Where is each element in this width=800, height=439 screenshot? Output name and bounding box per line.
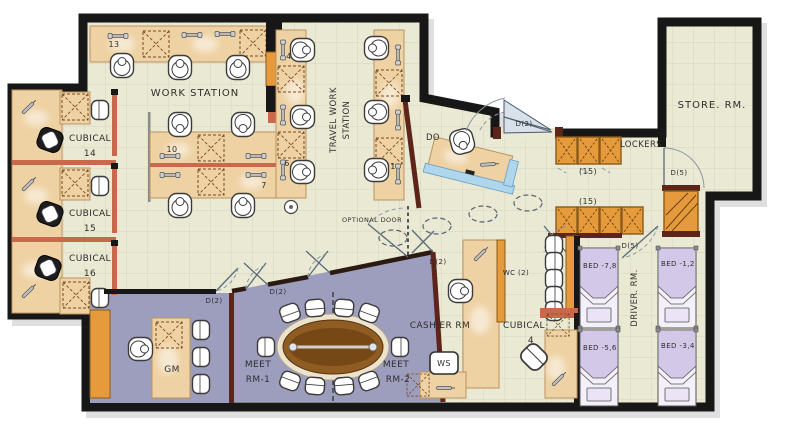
room-label-meet1-num: RM-1: [246, 375, 271, 385]
door-label-d2-gm: D(2): [206, 297, 223, 305]
meeting-chair-icon: [305, 377, 325, 396]
label-lockers: LOCKERS: [620, 140, 662, 150]
workstation-top-counter: [90, 26, 268, 80]
person-chair-icon: [232, 113, 255, 137]
workstation-number-13: 13: [109, 40, 120, 49]
room-label-gm: GM: [164, 365, 180, 375]
room-label-travel-work-1: TRAVEL WORK: [329, 87, 339, 154]
bed-label-56: BED -5,6: [583, 344, 617, 352]
bed-label-34: BED -3,4: [661, 342, 695, 350]
person-chair-icon: [232, 194, 255, 218]
room-label-meet2-num: RM-2: [386, 375, 411, 385]
locker-icon: [600, 137, 621, 164]
door-label-d2-meet: D(2): [270, 288, 287, 296]
locker-icon: [556, 137, 577, 164]
door-label-d5-store: D(5): [671, 169, 688, 177]
cubical-partition: [112, 168, 117, 233]
bed-56: [578, 328, 620, 406]
cubical14-shelf: [60, 92, 90, 124]
room-label-driver: DRIVER. RM.: [630, 269, 640, 327]
workstation-number-7: 7: [261, 181, 267, 190]
meeting-chair-icon: [305, 299, 325, 318]
cubical-partition: [112, 245, 117, 295]
gm-cabinet: [90, 310, 110, 398]
room-label-meet1-word: MEET: [245, 360, 271, 370]
person-chair-icon: [365, 159, 389, 182]
room-label-cashier: CASHIER RM: [410, 321, 470, 331]
workstation-number-10: 10: [167, 145, 178, 154]
meeting-chair-icon: [334, 299, 354, 318]
meeting-chair-icon: [392, 338, 409, 357]
cubical-partition: [12, 237, 116, 242]
room-label-cubical16-num: 16: [84, 269, 96, 279]
room-label-cubical15-num: 15: [84, 224, 96, 234]
cubical-partition: [12, 160, 116, 165]
door-label-d5-driver: D(5): [622, 242, 639, 250]
label-optional-door: OPTIONAL DOOR: [342, 216, 402, 224]
person-chair-icon: [129, 338, 153, 361]
guest-chair-icon: [193, 375, 210, 394]
person-chair-icon: [365, 37, 389, 60]
locker-icon: [556, 207, 577, 234]
person-chair-icon: [169, 113, 192, 137]
guest-chair-icon: [92, 101, 109, 120]
floor-plan-canvas: WORK STATION TRAVEL WORK STATION STORE. …: [0, 0, 800, 439]
room-label-cubical14-word: CUBICAL: [69, 134, 111, 144]
room-label-wc: WC (2): [503, 269, 529, 277]
bench-chair-icon: [546, 236, 563, 255]
wardrobe-cabinet: [662, 185, 700, 237]
column-icon: [289, 205, 293, 209]
locker-icon: [622, 207, 643, 234]
room-label-cubical16-word: CUBICAL: [69, 254, 111, 264]
room-label-cubical15-word: CUBICAL: [69, 209, 111, 219]
workstation-number-4: 4: [286, 52, 292, 61]
room-label-cubical14-num: 14: [84, 149, 96, 159]
bench-chair-icon: [546, 253, 563, 272]
person-chair-icon: [169, 194, 192, 218]
floor-plan: WORK STATION TRAVEL WORK STATION STORE. …: [0, 0, 800, 439]
locker-icon: [600, 207, 621, 234]
room-label-work-station: WORK STATION: [151, 88, 240, 99]
person-chair-icon: [169, 56, 192, 80]
meeting-chair-icon: [258, 338, 275, 357]
person-chair-icon: [365, 101, 389, 124]
bed-78: [578, 246, 620, 330]
room-label-travel-work-2: STATION: [342, 101, 352, 140]
guest-chair-icon: [193, 321, 210, 340]
locker-icon: [578, 207, 599, 234]
bed-label-12: BED -1,2: [661, 260, 695, 268]
door-label-d2-entrance: D(2): [516, 120, 533, 128]
label-locker-capacity-1: (15): [579, 167, 597, 176]
room-label-do: DO: [426, 133, 440, 143]
bed-label-78: BED -7,8: [583, 262, 617, 270]
cubical-partition: [112, 94, 117, 156]
room-label-store: STORE. RM.: [678, 100, 747, 111]
meeting-chair-icon: [334, 377, 354, 396]
person-chair-icon: [291, 39, 315, 62]
label-locker-capacity-2: (15): [579, 197, 597, 206]
locker-icon: [578, 137, 599, 164]
door-label-d2-cashier: D(2): [430, 258, 447, 266]
room-label-cubical4-num: 4: [528, 336, 534, 346]
bench-chair-icon: [546, 270, 563, 289]
person-chair-icon: [291, 106, 315, 129]
guest-chair-icon: [92, 177, 109, 196]
person-chair-icon: [111, 54, 134, 78]
label-ws: WS: [437, 359, 451, 368]
workstation-number-1: 1: [390, 162, 396, 171]
cubical15-shelf: [60, 168, 90, 200]
guest-chair-icon: [193, 348, 210, 367]
workstation-number-6: 6: [284, 159, 290, 168]
room-label-cubical4-word: CUBICAL: [503, 321, 545, 331]
room-label-meet2-word: MEET: [383, 360, 409, 370]
person-chair-icon: [449, 280, 473, 303]
bed-12: [656, 246, 698, 330]
person-chair-icon: [227, 56, 250, 80]
person-chair-icon: [291, 161, 315, 184]
bed-34: [656, 328, 698, 406]
